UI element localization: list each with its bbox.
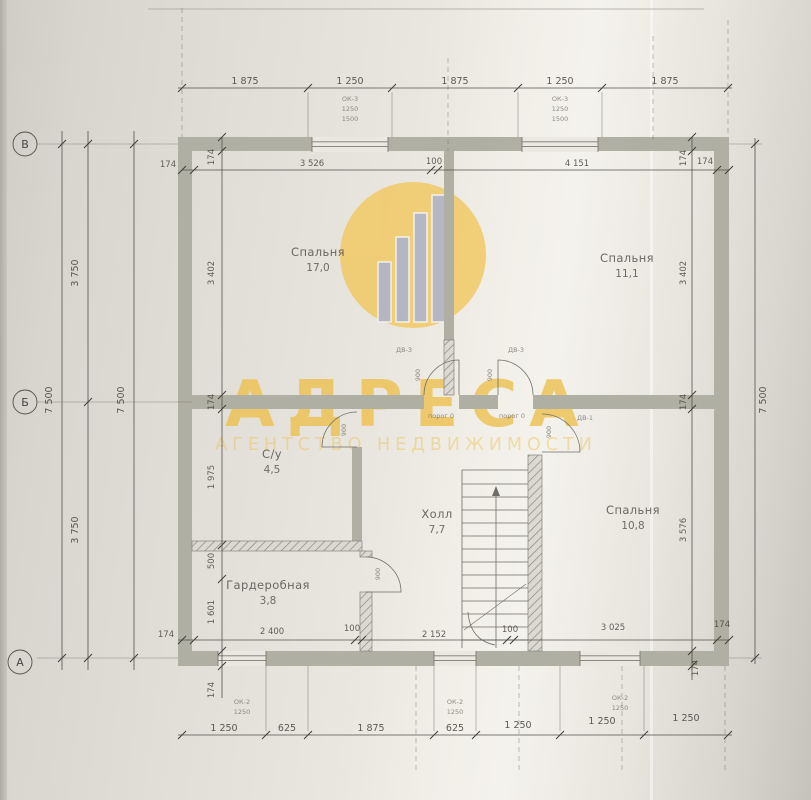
bedroom-divider-wall	[444, 151, 454, 340]
axis-markers: В Б А	[8, 132, 37, 674]
window-w-botleft: 1250	[234, 708, 251, 716]
room-bedroom1-area: 17,0	[306, 262, 329, 274]
blueprint-photo: АДРЕСА АГЕНТСТВО НЕДВИЖИМОСТИ	[0, 0, 811, 800]
dim-top-3: 1 875	[441, 76, 468, 87]
floor-plan-drawing: АДРЕСА АГЕНТСТВО НЕДВИЖИМОСТИ	[0, 0, 811, 800]
dim-bot-5: 1 250	[504, 720, 531, 731]
dim-rint-3: 174	[679, 394, 689, 410]
dim-botin-5: 100	[502, 625, 518, 635]
dim-botin-3: 100	[344, 624, 360, 634]
dim-botin-7: 174	[714, 620, 730, 630]
dim-bot-2: 625	[278, 723, 296, 734]
dim-left-total-inner: 7 500	[116, 386, 127, 413]
bedroom-divider-wall-hatched	[444, 340, 454, 395]
dim-bot-4: 625	[446, 723, 464, 734]
staircase	[462, 470, 528, 648]
dim-top-5: 1 875	[651, 76, 678, 87]
window-tag-botmid: ОК-2	[447, 698, 463, 706]
dim-bot-6: 1 250	[588, 716, 615, 727]
axis-label-v: В	[21, 138, 29, 151]
wardrobe-wall	[360, 592, 372, 651]
window-tag-topleft: ОК-3	[342, 95, 358, 103]
dim-topin-4: 4 151	[565, 159, 589, 169]
dim-botin-1: 174	[158, 630, 174, 640]
door-width-left: 900	[414, 369, 422, 381]
door-threshold-left: порог 0	[428, 412, 454, 420]
dim-topin-5: 174	[697, 157, 713, 167]
dim-rint-2: 3 402	[679, 261, 689, 285]
door-wardrobe	[366, 557, 401, 592]
dim-lint-1: 174	[207, 149, 217, 165]
dim-botin-6: 3 025	[601, 623, 625, 633]
bathroom-wardrobe-divider	[192, 541, 362, 551]
agency-watermark: АДРЕСА АГЕНТСТВО НЕДВИЖИМОСТИ	[215, 182, 597, 455]
dim-topin-3: 100	[426, 157, 442, 167]
dim-lint-6: 1 601	[207, 600, 217, 624]
axis-label-a: А	[16, 656, 24, 669]
dim-lint-4: 1 975	[207, 465, 217, 489]
window-bottom-right	[580, 651, 640, 666]
window-top-right	[522, 137, 598, 152]
window-w-botmid: 1250	[447, 708, 464, 716]
dim-rint-1: 174	[679, 150, 689, 166]
dim-botin-2: 2 400	[260, 627, 284, 637]
window-bottom-middle	[434, 651, 476, 666]
room-bedroom3-name: Спальня	[606, 503, 660, 517]
dim-top-4: 1 250	[546, 76, 573, 87]
door-width-wardrobe: 900	[374, 568, 382, 580]
window-w-botright: 1250	[612, 704, 629, 712]
room-bathroom-name: С/у	[262, 447, 282, 461]
dim-left-total-outer: 7 500	[44, 386, 55, 413]
door-threshold-right: порог 0	[499, 412, 525, 420]
room-bedroom1-name: Спальня	[291, 245, 345, 259]
dim-topin-2: 3 526	[300, 159, 324, 169]
dim-lint-3: 174	[207, 394, 217, 410]
window-tag-topright: ОК-3	[552, 95, 568, 103]
window-w-topleft: 1250	[342, 105, 359, 113]
dim-left-half-1: 3 750	[70, 259, 81, 286]
dim-bot-3: 1 875	[357, 723, 384, 734]
room-wardrobe-area: 3,8	[260, 595, 277, 607]
wardrobe-wall-stub	[360, 551, 372, 557]
agency-logo	[340, 182, 486, 328]
window-tag-botleft: ОК-2	[234, 698, 250, 706]
axis-label-b: Б	[21, 396, 29, 409]
window-bottom-left	[218, 651, 266, 666]
dim-botin-4: 2 152	[422, 630, 446, 640]
room-hall-area: 7,7	[429, 524, 446, 536]
stair-bedroom-wall	[528, 455, 542, 651]
door-width-right: 900	[486, 369, 494, 381]
room-hall-name: Холл	[421, 507, 452, 521]
door-tag-left: ДВ-3	[396, 346, 412, 354]
door-tag-right: ДВ-3	[508, 346, 524, 354]
dim-bot-7: 1 250	[672, 713, 699, 724]
dim-rint-5: 174	[691, 660, 701, 676]
door-width-bathroom: 900	[340, 424, 348, 436]
room-bathroom-area: 4,5	[264, 464, 281, 476]
window-w-topright: 1250	[552, 105, 569, 113]
dim-lint-5: 500	[207, 553, 217, 569]
dim-left-half-2: 3 750	[70, 516, 81, 543]
dim-topin-1: 174	[160, 160, 176, 170]
dim-lint-2: 3 402	[207, 261, 217, 285]
dim-lint-7: 174	[207, 682, 217, 698]
dim-top-1: 1 875	[231, 76, 258, 87]
window-h-topright: 1500	[552, 115, 569, 123]
dim-bot-1: 1 250	[210, 723, 237, 734]
logo-circle-icon	[340, 182, 486, 328]
window-top-left	[312, 137, 388, 152]
dim-rint-4: 3 576	[679, 518, 689, 542]
room-wardrobe-name: Гардеробная	[226, 578, 310, 592]
stair-direction-arrow-icon	[492, 486, 500, 496]
bathroom-wall	[352, 447, 362, 541]
room-bedroom2-name: Спальня	[600, 251, 654, 265]
dim-top-2: 1 250	[336, 76, 363, 87]
dim-right-total: 7 500	[758, 386, 769, 413]
window-tag-botright: ОК-2	[612, 694, 628, 702]
door-width-bedroom: 900	[545, 426, 553, 438]
room-bedroom3-area: 10,8	[621, 520, 644, 532]
room-bedroom2-area: 11,1	[615, 268, 638, 280]
window-h-topleft: 1500	[342, 115, 359, 123]
door-tag-bedroom: ДВ-1	[577, 414, 593, 422]
